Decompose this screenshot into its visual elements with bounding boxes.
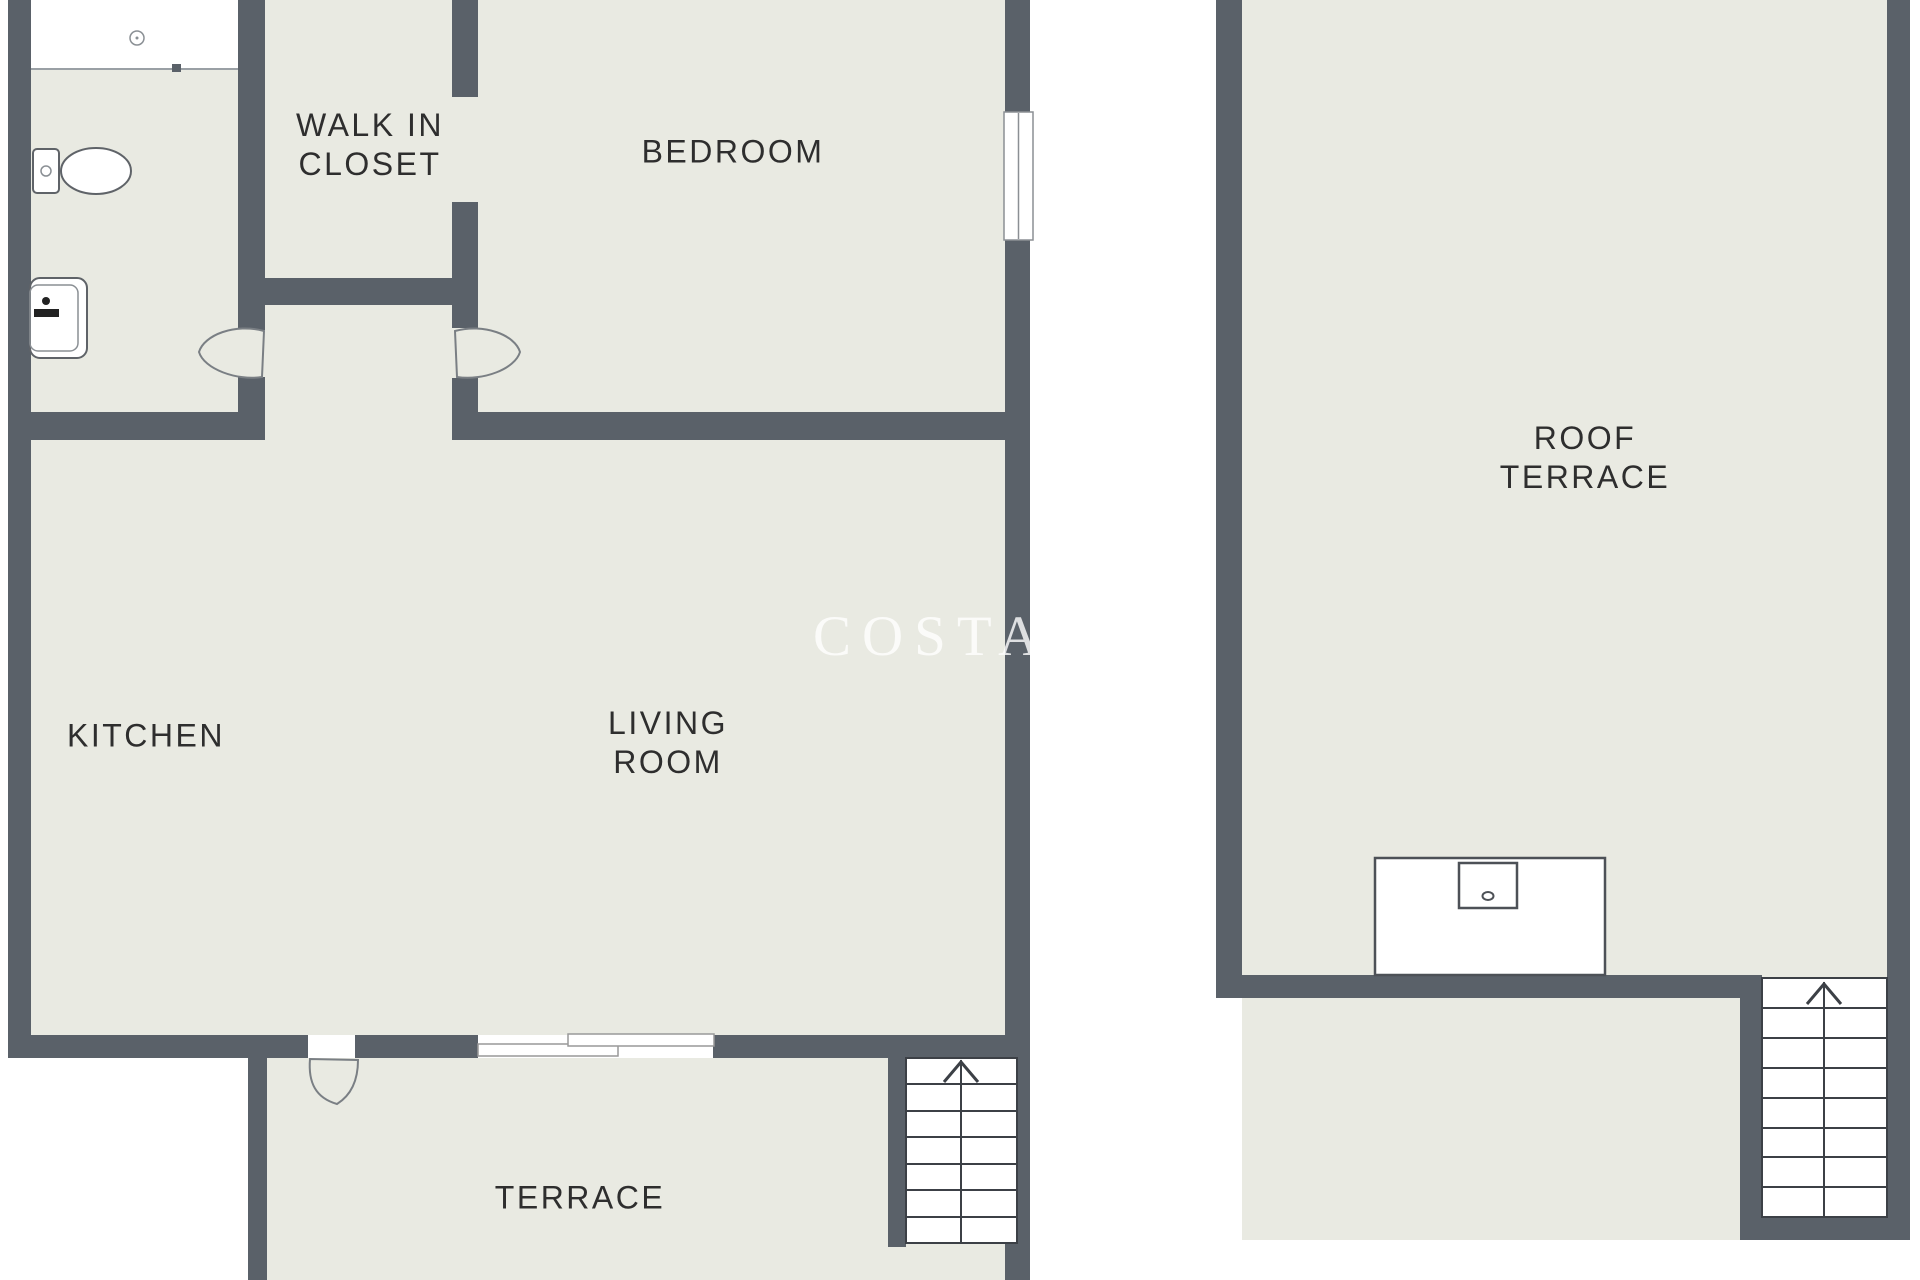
room-label-walk-in-closet: WALK IN CLOSET bbox=[296, 106, 444, 184]
sliding-door-icon bbox=[478, 1034, 714, 1056]
apartment-floor bbox=[31, 0, 1005, 1035]
stairs-up-icon bbox=[906, 1058, 1017, 1243]
room-label-living-room: LIVING ROOM bbox=[608, 704, 728, 782]
room-label-bedroom: BEDROOM bbox=[642, 132, 825, 171]
room-label-kitchen: KITCHEN bbox=[67, 716, 225, 755]
roof-terrace-plan bbox=[1216, 0, 1910, 1240]
toilet-icon bbox=[33, 148, 131, 194]
window-icon bbox=[1004, 112, 1033, 240]
floor-plan-drawing bbox=[0, 0, 1920, 1280]
washbasin-icon bbox=[30, 278, 87, 358]
room-label-terrace: TERRACE bbox=[495, 1178, 665, 1217]
shower-icon bbox=[31, 0, 242, 72]
roof-counter-sink-icon bbox=[1375, 858, 1605, 975]
stairs-up-icon bbox=[1762, 978, 1887, 1217]
floor-plan-page: WALK IN CLOSET BEDROOM KITCHEN LIVING RO… bbox=[0, 0, 1920, 1280]
room-label-roof-terrace: ROOF TERRACE bbox=[1500, 419, 1670, 497]
main-floor-plan bbox=[8, 0, 1033, 1280]
